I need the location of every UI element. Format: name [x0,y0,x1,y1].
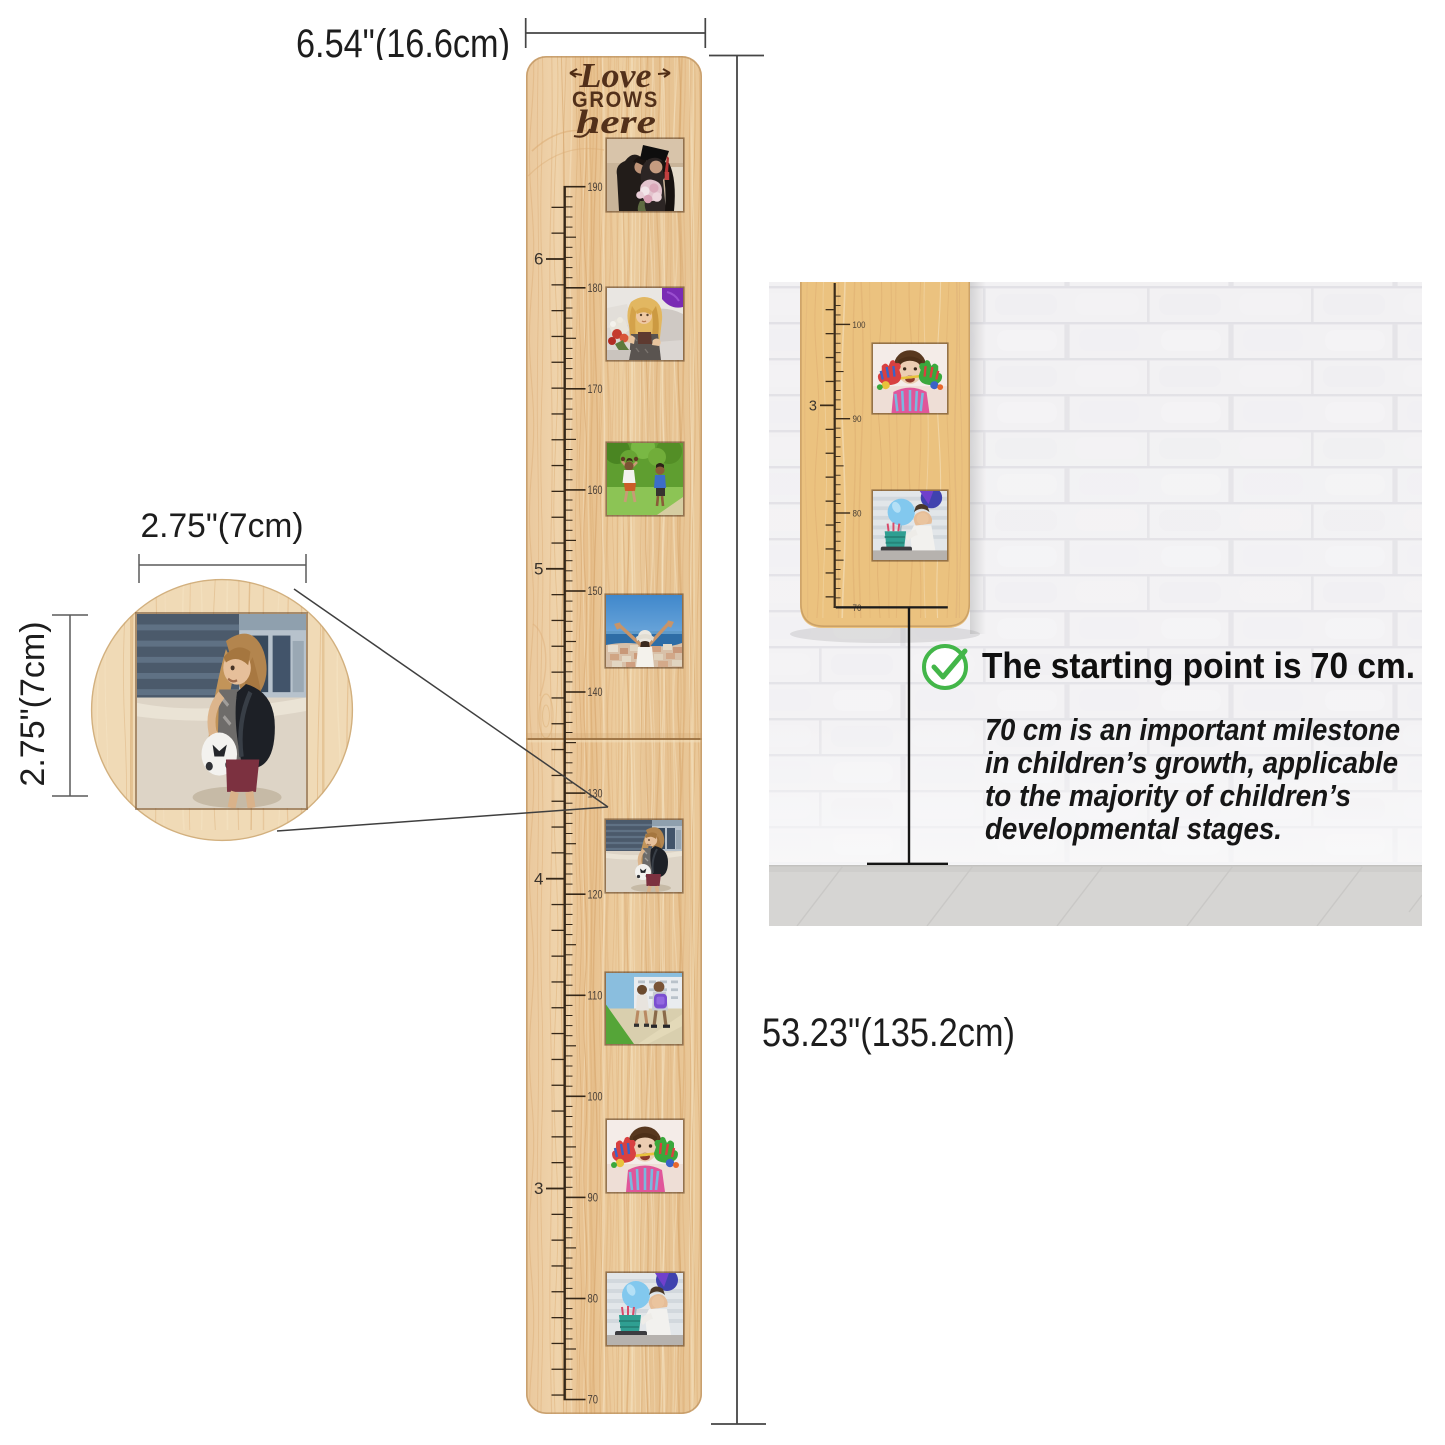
svg-text:100: 100 [853,320,866,331]
svg-text:3: 3 [809,398,817,414]
svg-text:70 cm is an important mileston: 70 cm is an important milestone [985,714,1400,747]
svg-text:90: 90 [853,414,862,425]
svg-text:80: 80 [853,509,862,520]
svg-text:developmental stages.: developmental stages. [985,812,1282,846]
svg-text:in children’s growth, applicab: in children’s growth, applicable [985,746,1398,780]
svg-text:The starting point is 70 cm.: The starting point is 70 cm. [982,645,1415,686]
svg-text:to the majority of children’s: to the majority of children’s [985,779,1351,813]
